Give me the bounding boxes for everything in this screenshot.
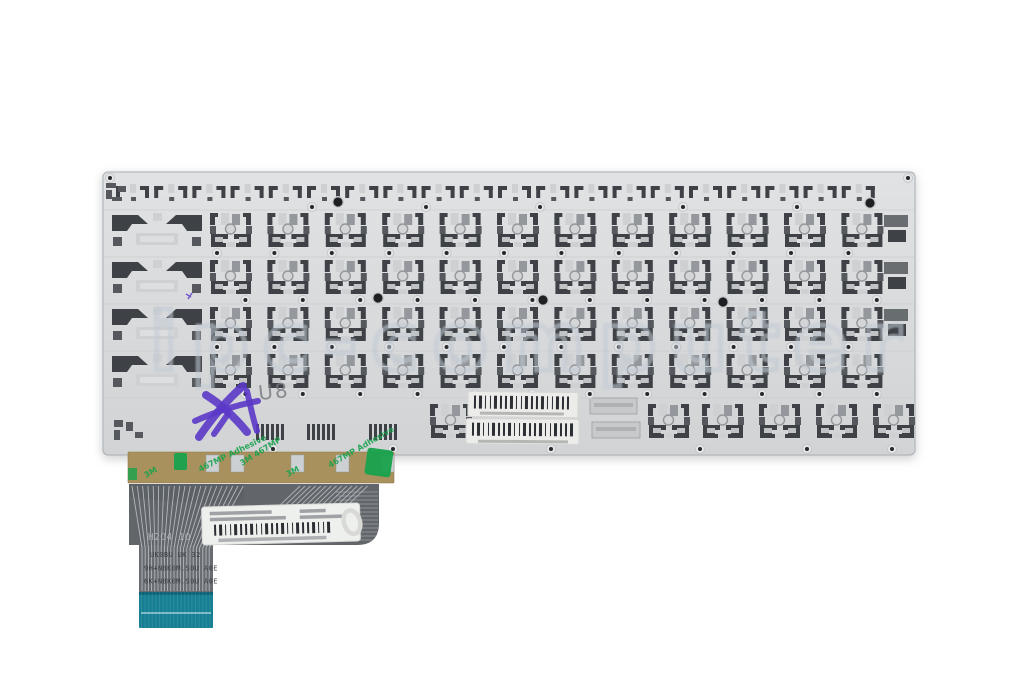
svg-text:U8: U8 xyxy=(257,378,291,405)
pencil-mark: U8 xyxy=(257,378,291,405)
ffc-connector xyxy=(139,592,213,628)
svg-text:H2O4 1O: H2O4 1O xyxy=(148,532,191,543)
svg-text:6K+N8K0M.S0U A0E: 6K+N8K0M.S0U A0E xyxy=(144,578,218,586)
barcode-label xyxy=(466,419,579,445)
product-photo: 3M467MP Adhesive3M 467MP3M467MP Adhesive… xyxy=(0,0,1024,680)
flex-barcode-label xyxy=(202,503,364,545)
svg-text:UK0BU UK 32: UK0BU UK 32 xyxy=(150,551,201,559)
flex-cable: H2O4 1OUK0BU UK 329H+N8K0M.S0U A0E6K+N8K… xyxy=(129,484,379,592)
barcode-label xyxy=(468,391,578,417)
svg-text:9H+N8K0M.S0U A0E: 9H+N8K0M.S0U A0E xyxy=(144,565,218,573)
keyboard-backplate-scene: 3M467MP Adhesive3M 467MP3M467MP Adhesive… xyxy=(0,0,1024,680)
